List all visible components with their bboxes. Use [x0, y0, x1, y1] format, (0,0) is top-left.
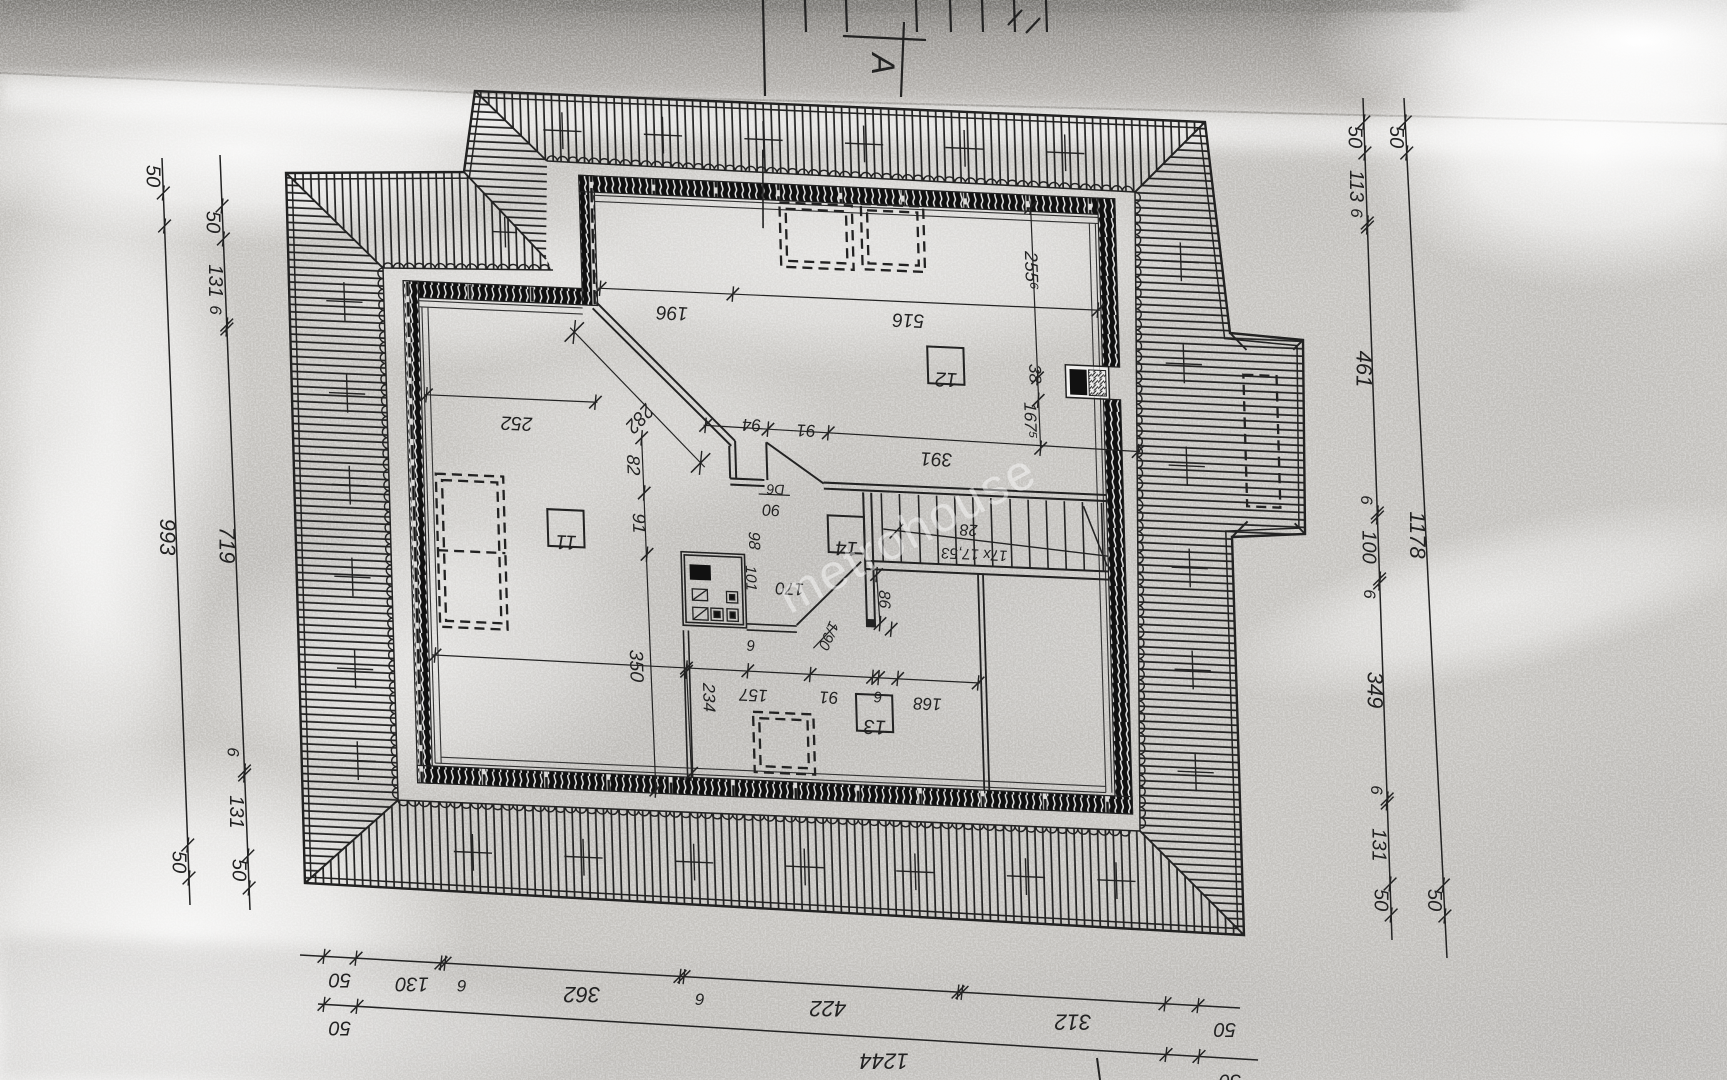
svg-text:50: 50 [329, 1016, 351, 1038]
svg-text:6: 6 [1357, 495, 1376, 505]
svg-text:131: 131 [204, 264, 226, 297]
svg-text:1244: 1244 [860, 1049, 909, 1074]
svg-text:11: 11 [556, 530, 578, 553]
svg-text:50: 50 [167, 851, 189, 873]
svg-text:98: 98 [745, 531, 763, 550]
svg-text:50: 50 [1423, 889, 1445, 911]
svg-text:196: 196 [656, 301, 689, 324]
svg-text:50: 50 [142, 165, 164, 187]
svg-text:6: 6 [873, 688, 882, 706]
svg-text:50: 50 [202, 211, 224, 233]
svg-text:234: 234 [699, 682, 720, 713]
svg-text:362: 362 [564, 982, 601, 1007]
svg-text:6: 6 [224, 747, 243, 757]
svg-text:349: 349 [1362, 672, 1387, 709]
svg-text:82: 82 [623, 454, 644, 475]
svg-text:6: 6 [695, 990, 705, 1009]
svg-text:50: 50 [329, 968, 351, 990]
svg-text:50: 50 [1219, 1069, 1241, 1080]
svg-text:131: 131 [225, 795, 247, 828]
svg-text:252: 252 [500, 411, 534, 434]
svg-text:50: 50 [227, 859, 249, 881]
svg-text:422: 422 [810, 996, 847, 1021]
svg-text:A: A [865, 51, 901, 74]
svg-text:131: 131 [1368, 828, 1390, 861]
svg-text:168: 168 [913, 693, 943, 714]
svg-text:719: 719 [214, 527, 239, 564]
svg-text:50: 50 [1214, 1018, 1236, 1040]
svg-text:12: 12 [935, 367, 958, 390]
svg-text:391: 391 [920, 447, 952, 470]
svg-text:113: 113 [1345, 170, 1367, 202]
svg-text:6: 6 [206, 305, 225, 315]
svg-text:38: 38 [1025, 364, 1045, 385]
svg-text:100: 100 [1357, 530, 1379, 563]
svg-text:461: 461 [1351, 351, 1376, 388]
svg-text:157: 157 [738, 685, 768, 706]
svg-text:17x 17,53: 17x 17,53 [941, 544, 1008, 564]
svg-text:1178: 1178 [1405, 511, 1430, 559]
svg-text:6: 6 [457, 976, 467, 995]
svg-text:993: 993 [155, 519, 180, 556]
svg-text:167⁵: 167⁵ [1020, 402, 1041, 439]
svg-text:13: 13 [863, 715, 887, 738]
svg-text:312: 312 [1055, 1010, 1092, 1035]
svg-text:90: 90 [762, 500, 780, 519]
svg-text:255⁶: 255⁶ [1021, 250, 1043, 291]
svg-text:50: 50 [1370, 889, 1392, 911]
svg-text:6: 6 [1347, 208, 1366, 218]
svg-text:6: 6 [1367, 785, 1386, 795]
svg-text:50: 50 [1385, 126, 1407, 148]
svg-text:50: 50 [1343, 126, 1365, 148]
svg-text:91: 91 [819, 687, 839, 708]
svg-text:86: 86 [875, 590, 893, 610]
svg-text:350: 350 [625, 649, 647, 683]
svg-text:516: 516 [892, 308, 925, 331]
svg-text:91: 91 [629, 513, 650, 534]
svg-text:6: 6 [746, 636, 755, 654]
svg-text:91: 91 [796, 420, 816, 441]
svg-text:6: 6 [1360, 589, 1379, 599]
svg-text:130: 130 [395, 972, 428, 994]
svg-text:101: 101 [742, 565, 760, 591]
svg-text:94: 94 [742, 415, 762, 436]
